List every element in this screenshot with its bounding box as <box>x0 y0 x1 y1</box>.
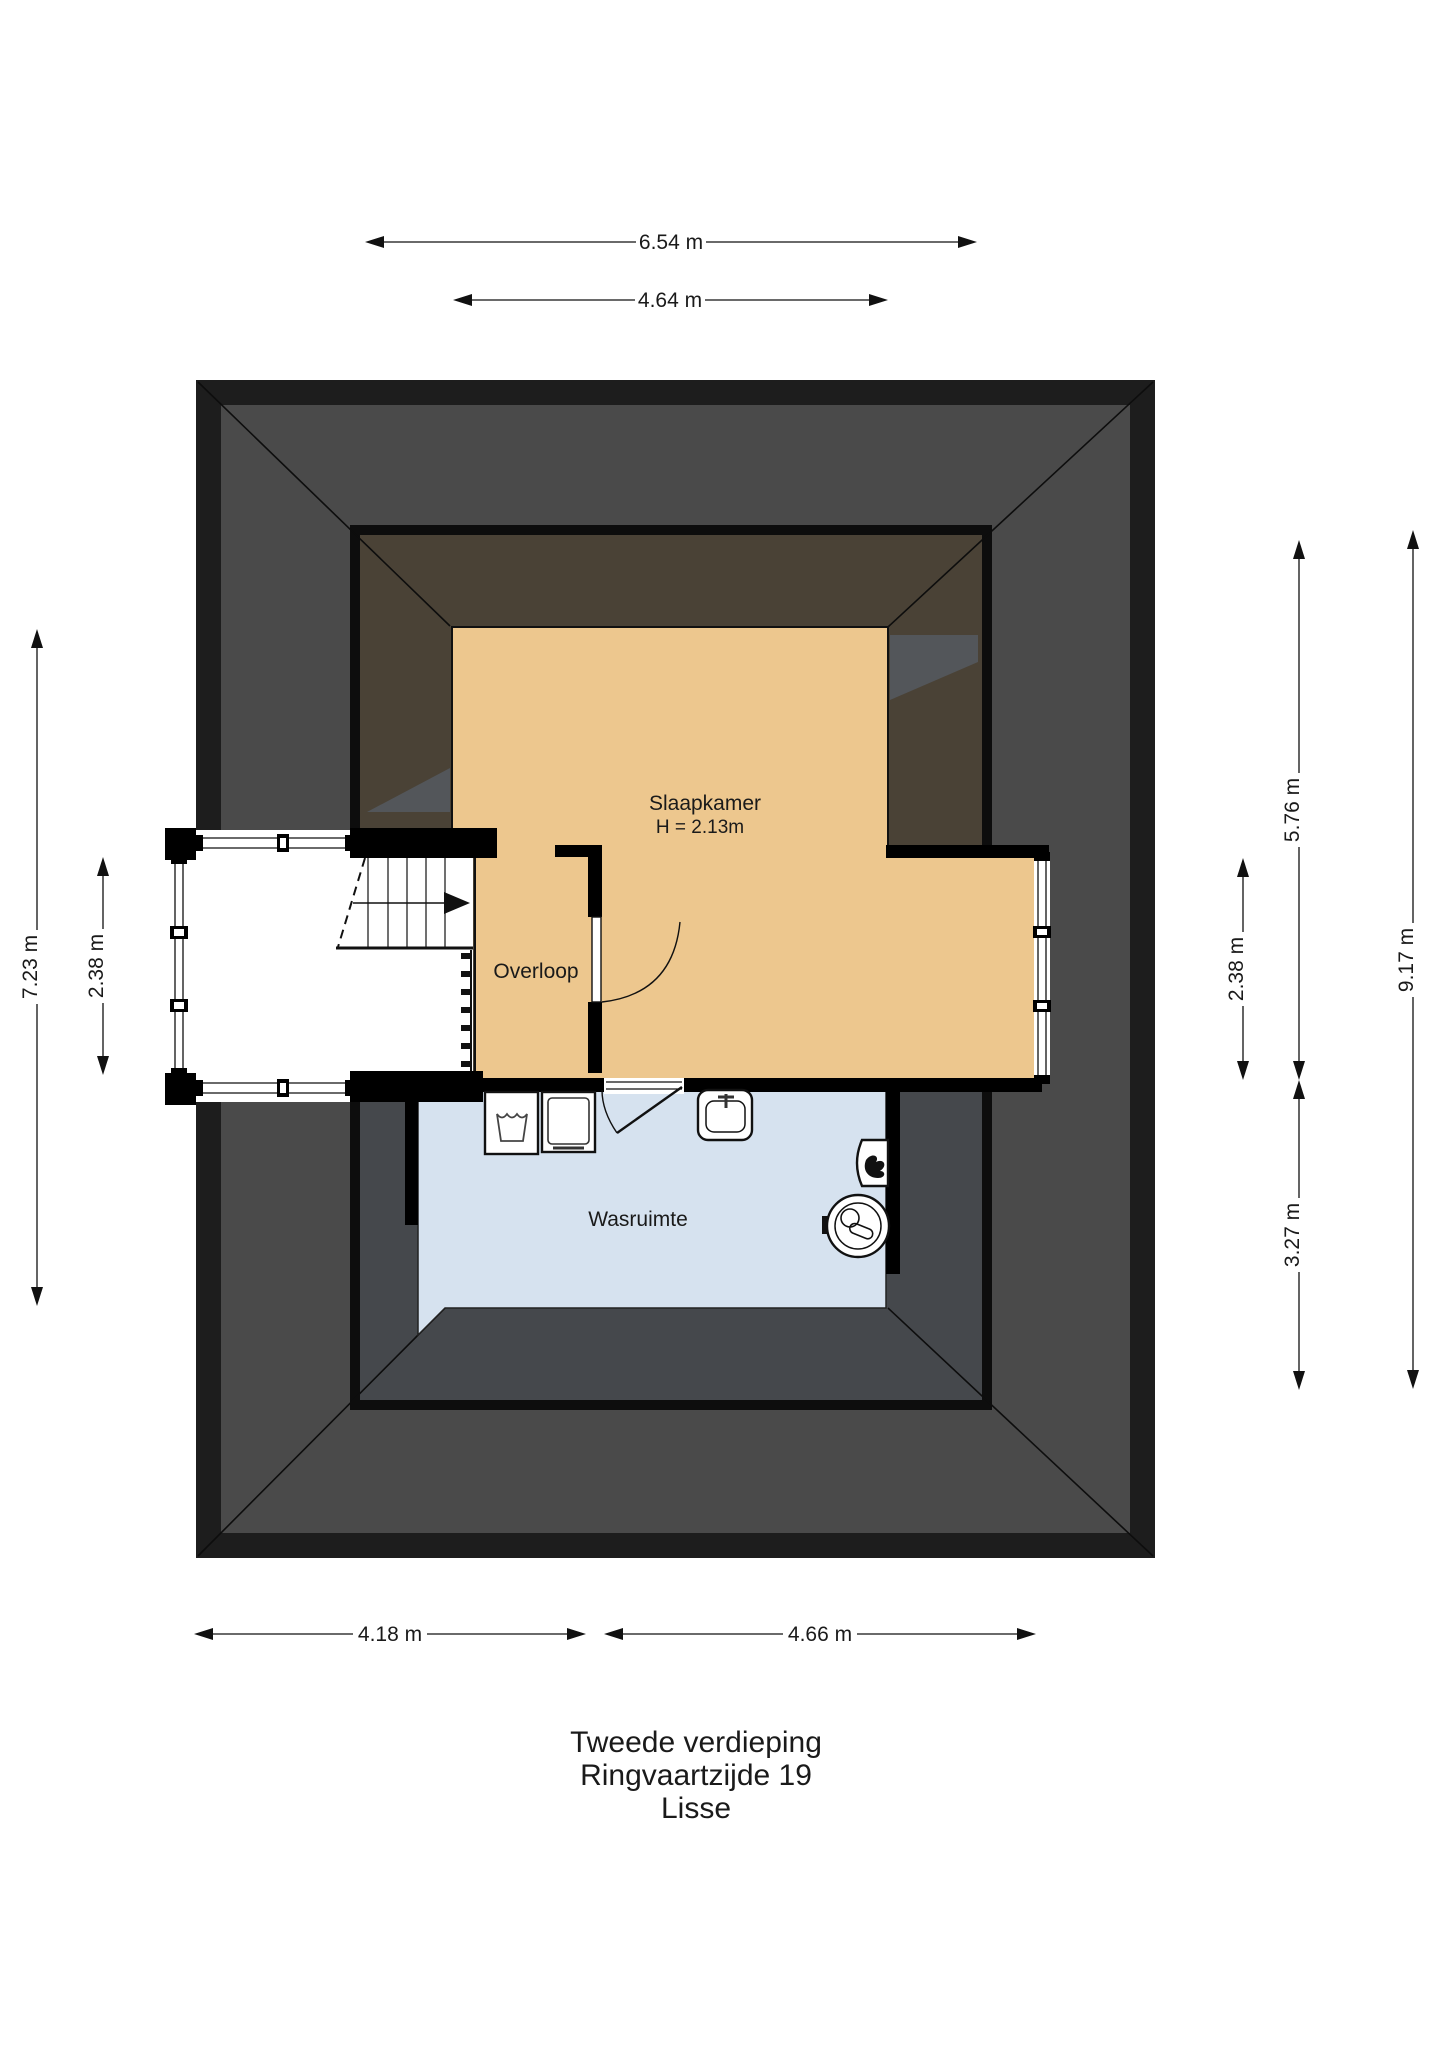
dim-label-left-inner: 2.38 m <box>85 934 108 998</box>
dim-label-bottom-left: 4.18 m <box>358 1623 422 1646</box>
heater <box>857 1140 888 1186</box>
dim-label-top-inner: 4.64 m <box>638 289 702 312</box>
dormer-window-top <box>196 830 353 857</box>
bedroom-window-right <box>1033 852 1051 1084</box>
dim-label-right-lower: 3.27 m <box>1281 1203 1304 1267</box>
dim-label-right-inner: 2.38 m <box>1225 937 1248 1001</box>
dimension-left-outer: 7.23 m <box>19 629 43 1306</box>
title-city: Lisse <box>661 1792 731 1825</box>
title-floor: Tweede verdieping <box>570 1726 822 1759</box>
room-label-laundry: Wasruimte <box>588 1208 688 1231</box>
dimension-top-inner: 4.64 m <box>453 289 888 312</box>
dimension-right-mid: 5.76 m <box>1281 540 1305 1080</box>
dim-label-right-mid: 5.76 m <box>1281 778 1304 842</box>
sink <box>698 1090 752 1140</box>
dormer-window-left <box>170 857 188 1075</box>
dim-label-right-outer: 9.17 m <box>1395 928 1418 992</box>
floorplan-drawing: 6.54 m 4.64 m 4.18 m 4.66 m 7.23 m 2.38 … <box>0 0 1448 2048</box>
washing-machine <box>542 1092 595 1152</box>
dim-label-bottom-right: 4.66 m <box>788 1623 852 1646</box>
room-label-bedroom: Slaapkamer <box>649 792 761 815</box>
dimension-bottom-left: 4.18 m <box>194 1623 586 1646</box>
dim-label-top-outer: 6.54 m <box>639 231 703 254</box>
dimension-right-lower: 3.27 m <box>1281 1080 1305 1390</box>
dimension-left-inner: 2.38 m <box>85 857 109 1075</box>
dimension-top-outer: 6.54 m <box>365 231 977 254</box>
plan-title: Tweede verdieping Ringvaartzijde 19 Liss… <box>570 1726 822 1825</box>
dimension-right-outer: 9.17 m <box>1395 530 1419 1389</box>
floorplan-page: 6.54 m 4.64 m 4.18 m 4.66 m 7.23 m 2.38 … <box>0 0 1448 2048</box>
dormer-window-bottom <box>196 1075 353 1102</box>
dimension-bottom-right: 4.66 m <box>604 1623 1036 1646</box>
title-address: Ringvaartzijde 19 <box>580 1759 812 1792</box>
dimension-right-inner: 2.38 m <box>1225 858 1249 1080</box>
dim-label-left-outer: 7.23 m <box>19 935 42 999</box>
stairwell-dormer-room <box>165 828 473 1105</box>
laundry-tub <box>485 1092 538 1154</box>
room-label-landing: Overloop <box>493 960 578 983</box>
room-label-bedroom-height: H = 2.13m <box>656 817 744 838</box>
